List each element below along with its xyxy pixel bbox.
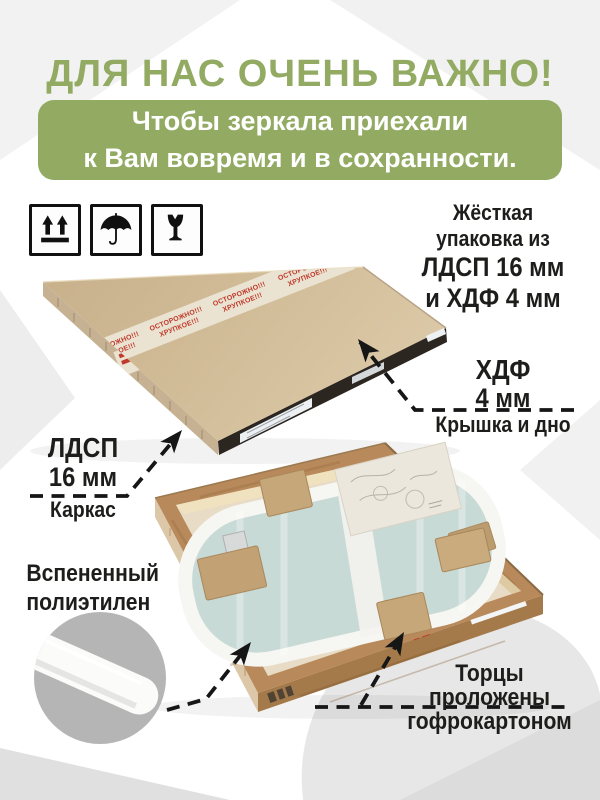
- rigid-line3: ЛДСП 16 мм: [418, 252, 568, 283]
- banner-line1: Чтобы зеркала приехали: [38, 103, 562, 140]
- page-title: ДЛЯ НАС ОЧЕНЬ ВАЖНО!: [0, 52, 600, 96]
- ldsp-title: ЛДСП: [26, 431, 140, 464]
- rigid-line2: упаковка из: [418, 226, 568, 252]
- handling-icons-row: [29, 204, 203, 256]
- rigid-line4: и ХДФ 4 мм: [418, 283, 568, 314]
- edges-callout: Торцы проложены гофрокартоном: [404, 662, 576, 734]
- hdf-callout: ХДФ 4 мм: [428, 353, 578, 410]
- foam-callout: Вспененный полиэтилен: [26, 559, 149, 617]
- ldsp-size: 16 мм: [26, 464, 140, 490]
- foam-detail-circle: [0, 612, 166, 744]
- foam-line2: полиэтилен: [26, 588, 149, 617]
- fragile-icon: [151, 204, 203, 256]
- rigid-packaging-note: Жёсткая упаковка из ЛДСП 16 мм и ХДФ 4 м…: [418, 200, 568, 314]
- edges-line2: проложены: [404, 686, 576, 710]
- foam-line1: Вспененный: [26, 559, 149, 588]
- ldsp-callout: ЛДСП 16 мм: [26, 431, 140, 490]
- edges-line3: гофрокартоном: [404, 710, 576, 734]
- hdf-caption: Крышка и дно: [428, 413, 578, 437]
- ldsp-caption: Каркас: [26, 498, 140, 522]
- this-side-up-icon: [29, 204, 81, 256]
- edges-line1: Торцы: [404, 662, 576, 686]
- hdf-size: 4 мм: [428, 386, 578, 410]
- packaging-infographic: ОСТОРОЖНО!!! ХРУПКОЕ!!! ОСТОРОЖНО!!! ХРУ…: [0, 0, 600, 800]
- hdf-title: ХДФ: [428, 353, 578, 386]
- banner-line2: к Вам вовремя и в сохранности.: [38, 140, 562, 177]
- keep-dry-icon: [90, 204, 142, 256]
- subtitle-banner: Чтобы зеркала приехали к Вам вовремя и в…: [38, 100, 562, 180]
- rigid-line1: Жёсткая: [418, 200, 568, 226]
